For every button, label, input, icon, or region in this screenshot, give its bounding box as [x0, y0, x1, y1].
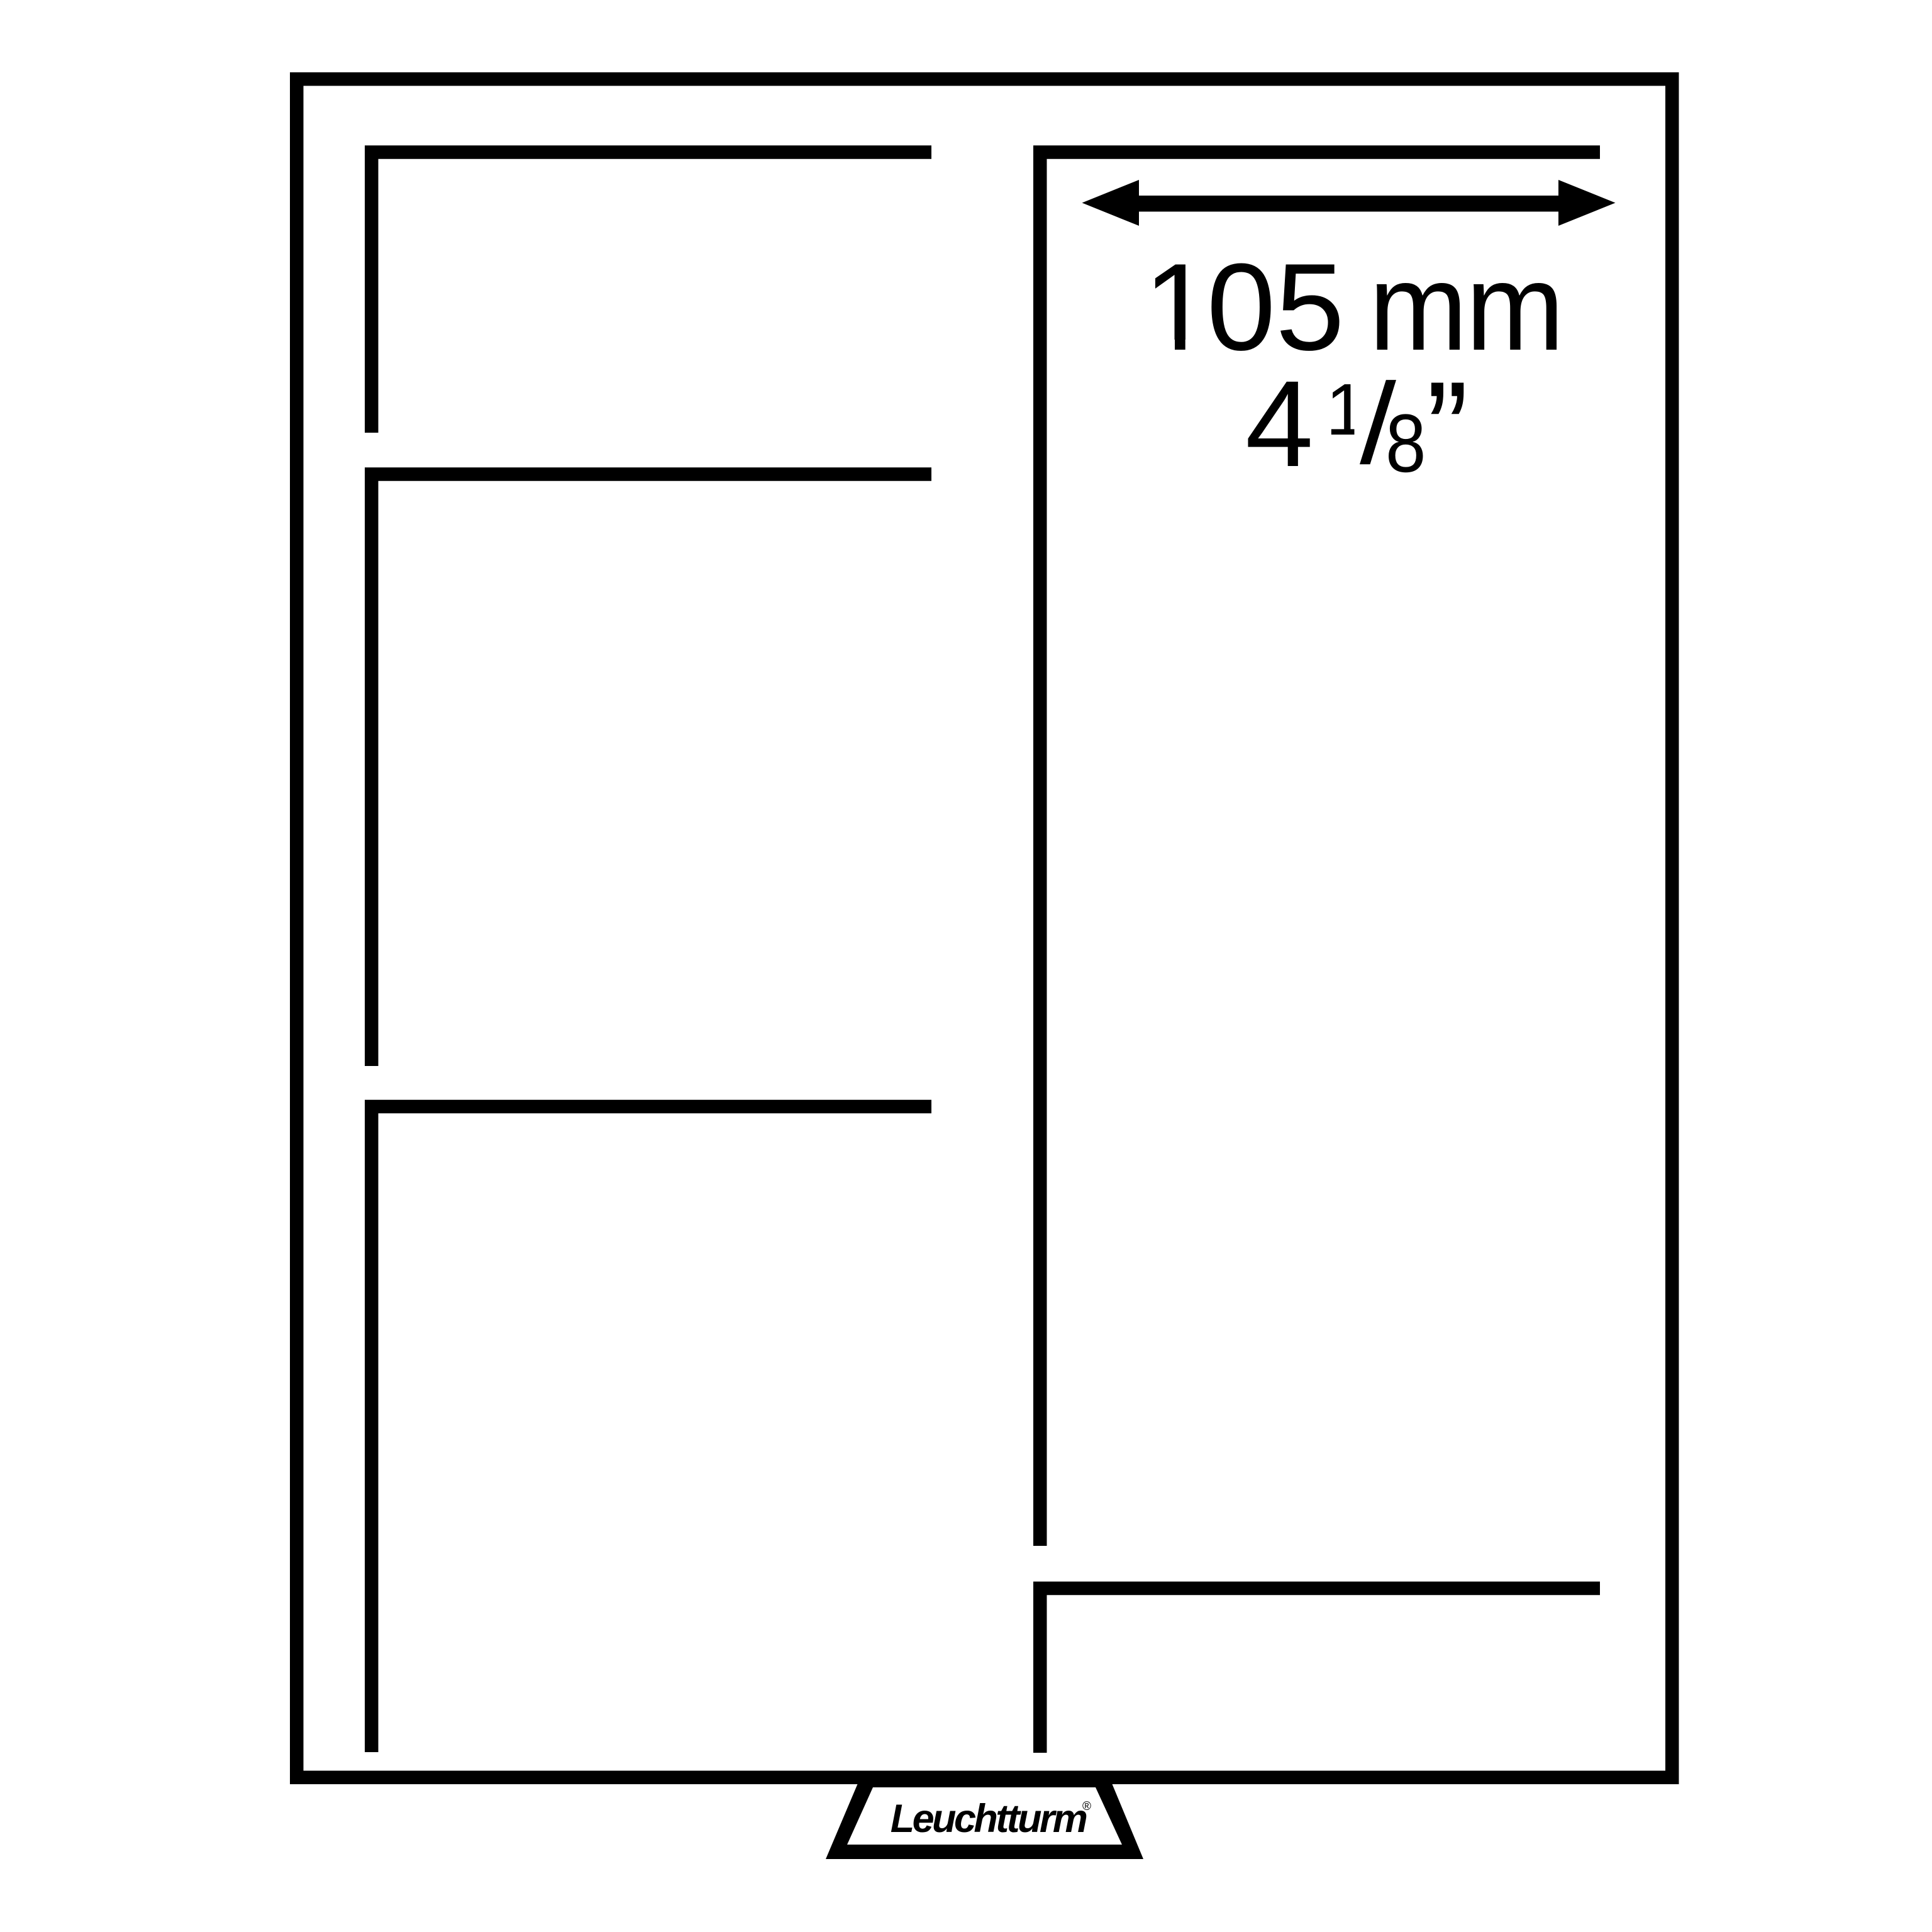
svg-text:4: 4: [1245, 355, 1313, 492]
svg-text:”: ”: [1426, 352, 1468, 509]
svg-text:®: ®: [1082, 1800, 1091, 1813]
svg-text:m: m: [1466, 238, 1565, 376]
svg-text:1: 1: [1143, 238, 1213, 376]
svg-text:Leuchtturm: Leuchtturm: [891, 1797, 1087, 1841]
svg-text:8: 8: [1385, 397, 1426, 489]
